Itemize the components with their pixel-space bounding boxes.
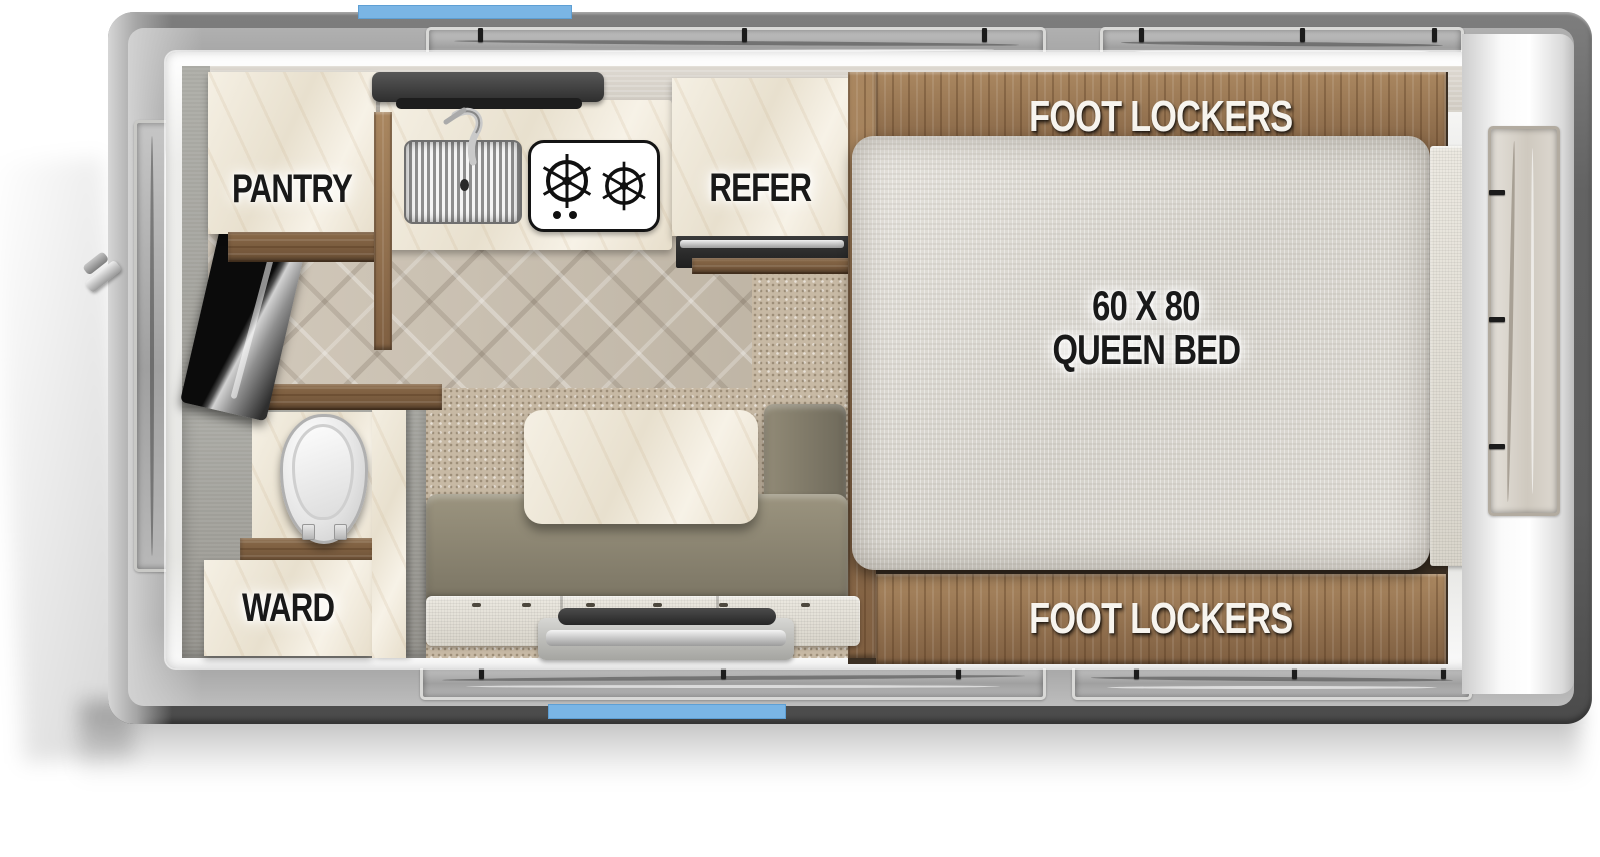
window-latch-icon	[1300, 28, 1305, 42]
seat-button-icon	[522, 603, 531, 607]
window-bottom-right	[1072, 664, 1472, 700]
window-bottom-left	[420, 664, 1046, 700]
cooktop-knob-icon	[553, 211, 561, 219]
seat-button-icon	[801, 603, 810, 607]
tv-shelf	[258, 384, 442, 410]
toilet-lid	[292, 424, 354, 520]
top-blue-marker	[358, 5, 572, 19]
refrigerator-label: REFER	[709, 166, 811, 211]
cooktop	[528, 140, 660, 232]
window-glare	[1091, 675, 1453, 682]
bathroom-partition	[372, 390, 406, 658]
bed-size-caption: 60 X 80 QUEEN BED	[966, 284, 1326, 376]
seat-button-icon	[472, 603, 481, 607]
window-latch-icon	[742, 28, 747, 42]
foot-lockers-top-label: FOOT LOCKERS	[1029, 92, 1292, 142]
burner-icon	[597, 159, 651, 213]
window-latch-icon	[478, 28, 483, 42]
refrigerator-cabinet: REFER	[672, 78, 848, 236]
bed-size-line: 60 X 80	[966, 284, 1326, 328]
faucet-icon	[438, 102, 500, 170]
entry-step-handle	[558, 608, 776, 625]
cooktop-knob-icon	[569, 211, 577, 219]
seat-button-icon	[586, 603, 595, 607]
bed-type-line: QUEEN BED	[966, 328, 1326, 372]
burner-icon	[537, 151, 597, 211]
pantry-front-edge	[228, 232, 376, 262]
foot-lockers-bottom: FOOT LOCKERS	[876, 574, 1446, 664]
seat-button-icon	[719, 603, 728, 607]
window-glare	[1121, 40, 1443, 47]
sink-drain-icon	[460, 179, 469, 191]
seat-button-icon	[653, 603, 662, 607]
refrigerator-base	[692, 258, 850, 274]
window-latch-icon	[1489, 317, 1505, 322]
window-latch-icon	[1432, 28, 1437, 42]
floorplan-canvas: WARD PANTRY	[0, 0, 1600, 857]
dinette-table	[524, 410, 758, 524]
toilet-hinge	[302, 524, 315, 540]
counter-side-panel	[374, 112, 392, 350]
window-latch-icon	[1489, 190, 1505, 195]
wardrobe-cabinet: WARD	[204, 560, 372, 656]
toilet-hinge	[334, 524, 347, 540]
bed-size-text: 60 X 80	[1092, 282, 1199, 330]
window-latch-icon	[1139, 28, 1144, 42]
entry-step-tread	[546, 630, 786, 646]
window-glare	[1531, 148, 1534, 494]
window-latch-icon	[1489, 444, 1505, 449]
window-glare	[1107, 686, 1438, 689]
pantry-cabinet: PANTRY	[208, 72, 376, 234]
tv-screen-glare	[230, 245, 277, 399]
wardrobe-label: WARD	[242, 586, 334, 631]
window-glare	[466, 685, 999, 688]
window-glare	[150, 136, 154, 555]
window-latch-icon	[982, 28, 987, 42]
window-rear-wall	[1488, 126, 1560, 516]
foot-lockers-bottom-label: FOOT LOCKERS	[1029, 594, 1292, 644]
window-glare	[442, 674, 1025, 682]
window-glare	[454, 39, 1019, 47]
bottom-blue-marker	[548, 704, 786, 719]
toilet	[280, 414, 368, 544]
window-glare	[1506, 141, 1516, 502]
bed-type-text: QUEEN BED	[1052, 326, 1240, 374]
pantry-label: PANTRY	[232, 167, 352, 212]
refrigerator-drawer-handle	[680, 240, 844, 248]
